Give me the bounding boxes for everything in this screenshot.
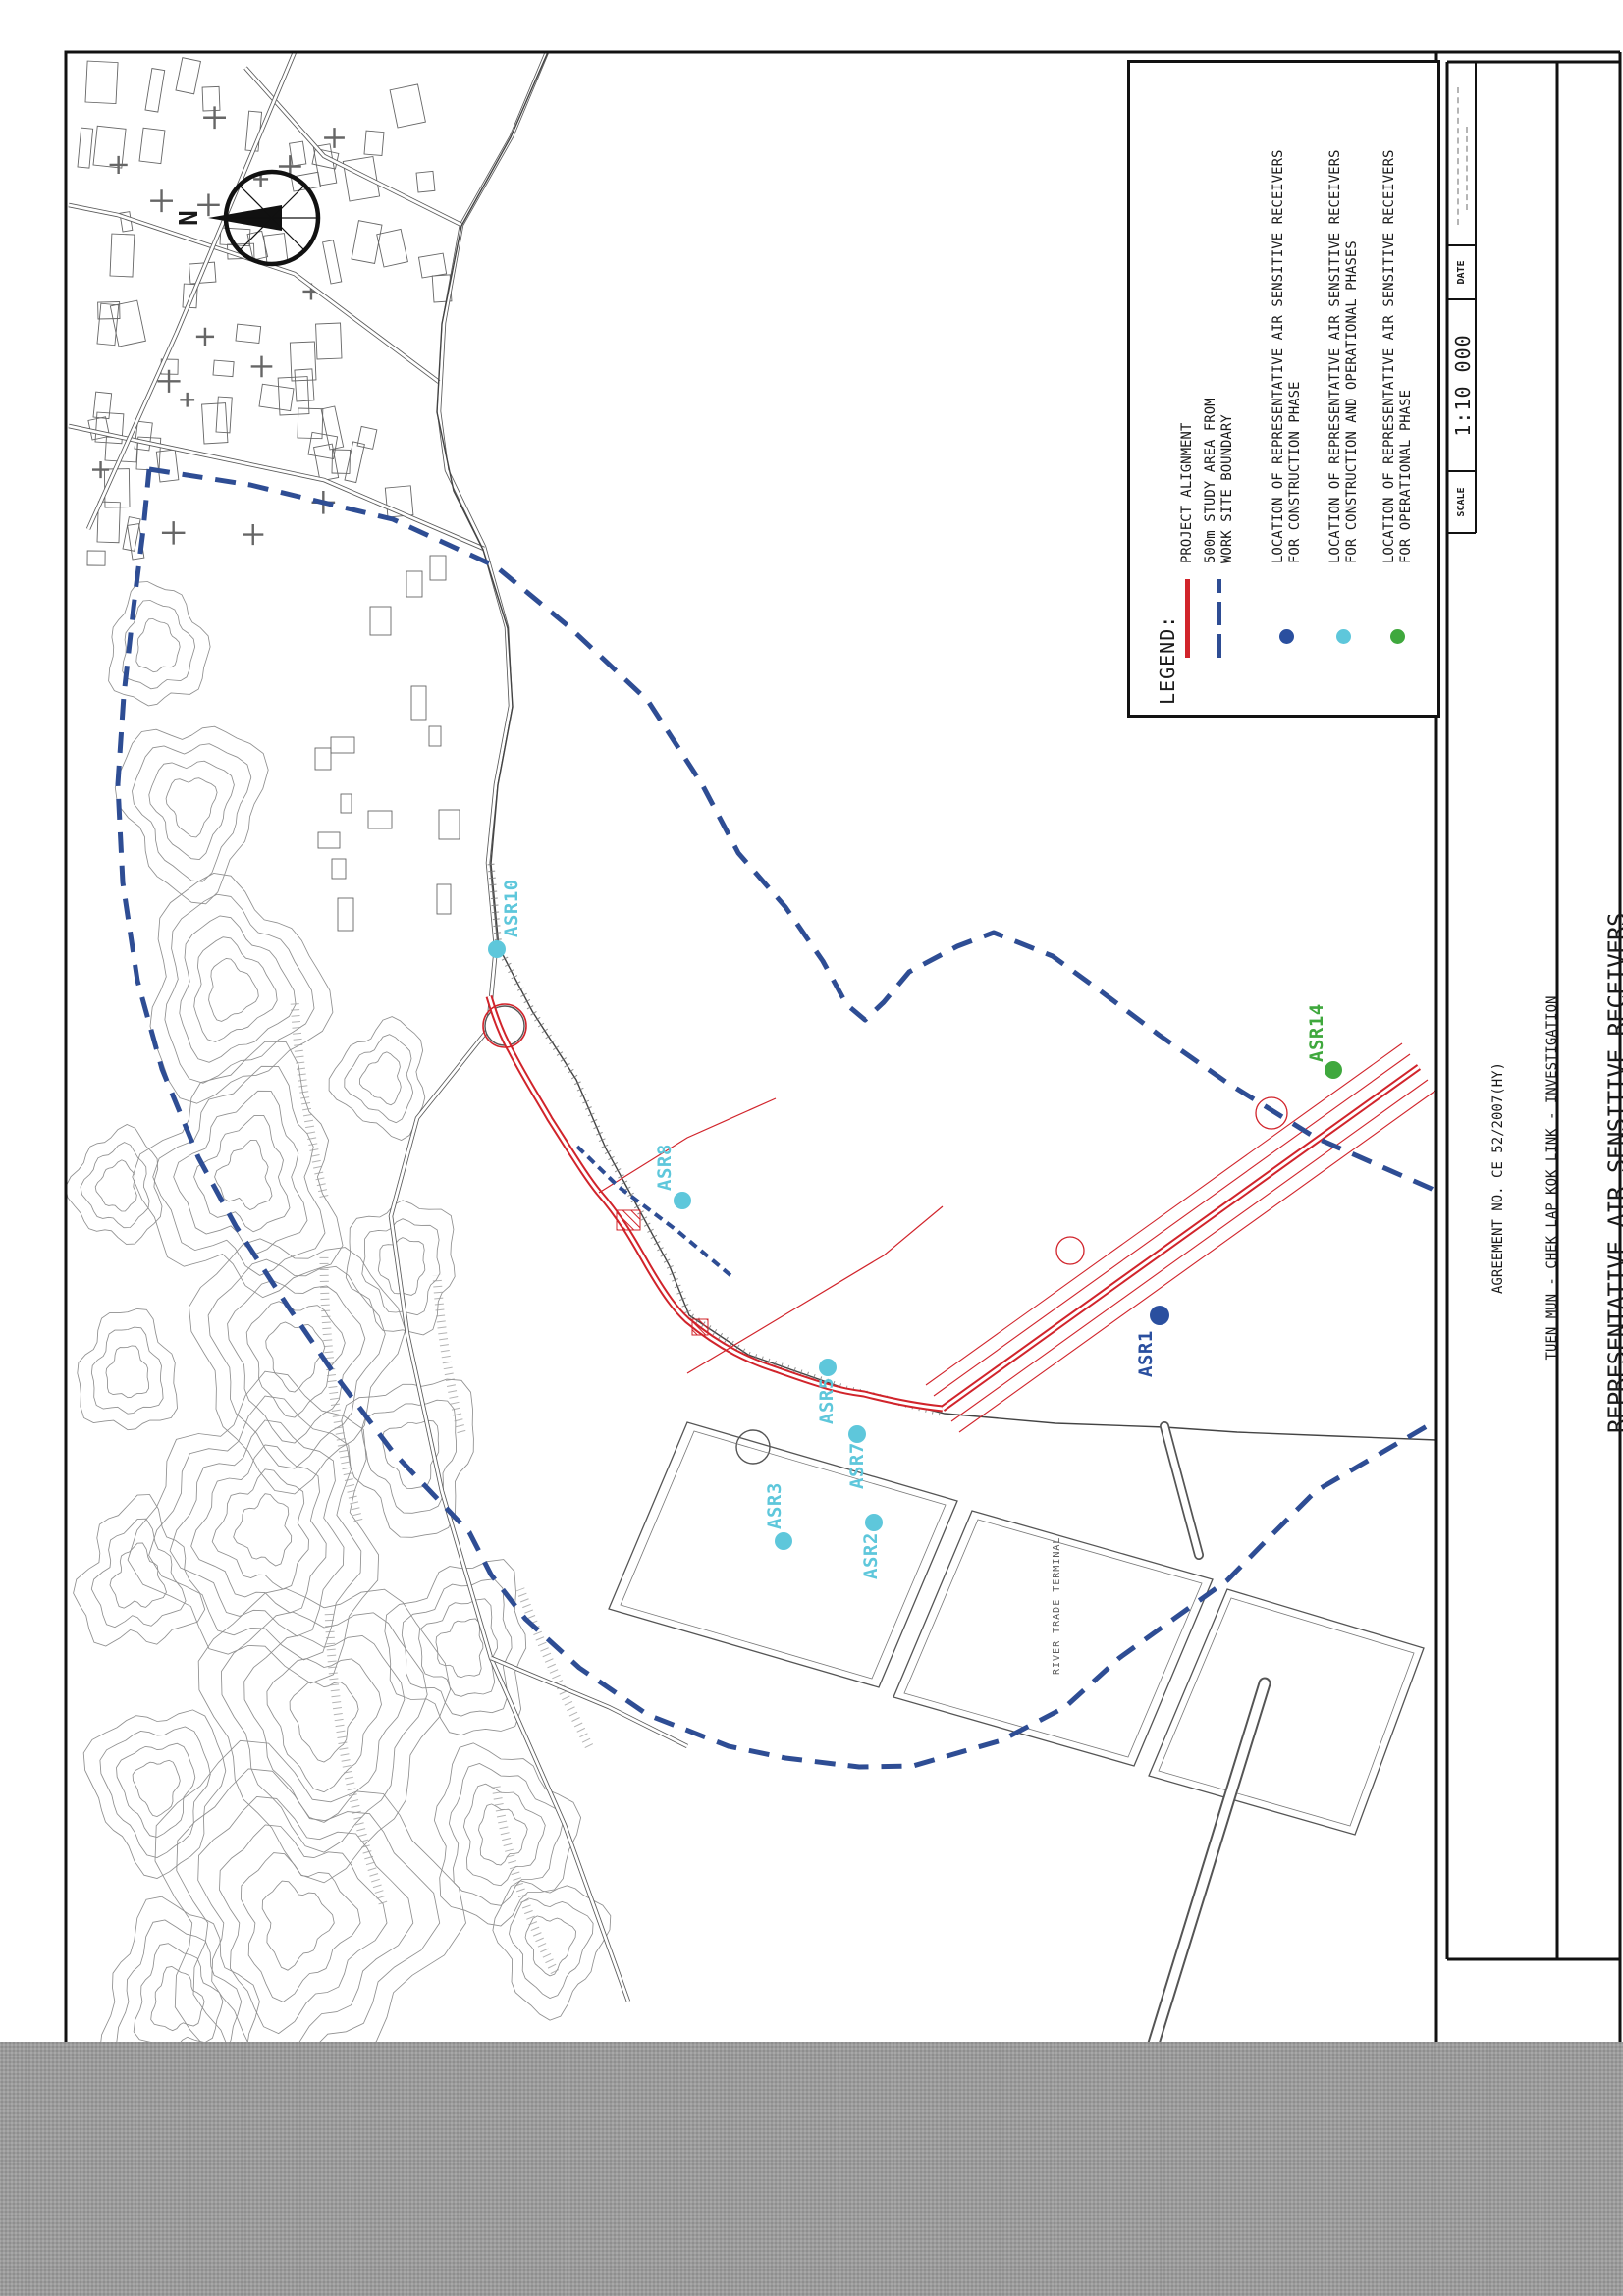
slip-road-loop bbox=[1056, 1237, 1084, 1264]
roundabout bbox=[736, 1430, 770, 1464]
asr-label-ASR3: ASR3 bbox=[764, 1482, 785, 1529]
date-label: DATE bbox=[1456, 245, 1467, 299]
ventilation-building bbox=[617, 1210, 640, 1230]
date-placeholder-marks bbox=[1466, 127, 1468, 210]
drawing-title: REPRESENTATIVE AIR SENSITIVE RECEIVERS bbox=[1603, 923, 1623, 1433]
legend-item-label: 500m STUDY AREA FROM WORK SITE BOUNDARY bbox=[1203, 398, 1236, 563]
port-basin bbox=[1149, 1589, 1424, 1835]
drawing-sheet: N LEGEND: PROJECT ALIGNMENT500m STUDY AR… bbox=[0, 0, 1623, 2296]
map-label: RIVER TRADE TERMINAL bbox=[1052, 1537, 1062, 1675]
title-block: AGREEMENT NO. CE 52/2007(HY) TUEN MUN - … bbox=[1453, 923, 1623, 1433]
scale-label: SCALE bbox=[1456, 471, 1467, 533]
project-alignment bbox=[489, 996, 943, 1409]
legend-item-label: PROJECT ALIGNMENT bbox=[1179, 423, 1196, 563]
screenshot-root: { "colors": { "alignment_red": "#d1242b"… bbox=[0, 0, 1623, 2296]
legend-title: LEGEND: bbox=[1156, 615, 1179, 705]
legend-symbol-receiver-dot bbox=[1279, 629, 1294, 644]
slope-hatch bbox=[295, 1000, 324, 1197]
legend-box: LEGEND: PROJECT ALIGNMENT500m STUDY AREA… bbox=[1127, 60, 1440, 718]
slope-hatch bbox=[437, 1275, 461, 1432]
asr-dot-ASR3 bbox=[775, 1532, 792, 1550]
legend-item-label: LOCATION OF REPRESENTATIVE AIR SENSITIVE… bbox=[1327, 150, 1361, 563]
date-placeholder-marks bbox=[1457, 87, 1459, 225]
project-name: TUEN MUN - CHEK LAP KOK LINK - INVESTIGA… bbox=[1544, 923, 1561, 1433]
asr-label-ASR2: ASR2 bbox=[860, 1532, 882, 1579]
slip-road-loop bbox=[1256, 1097, 1287, 1129]
legend-symbol-study-area-dashed-line bbox=[1217, 579, 1221, 658]
agreement-number: AGREEMENT NO. CE 52/2007(HY) bbox=[1490, 923, 1507, 1433]
receiver-dots bbox=[488, 940, 1342, 1550]
works-area-outline bbox=[951, 1080, 1428, 1421]
slope-hatch bbox=[329, 1609, 383, 1903]
asr-label-ASR1: ASR1 bbox=[1135, 1330, 1157, 1377]
legend-item-label: LOCATION OF REPRESENTATIVE AIR SENSITIVE… bbox=[1271, 150, 1304, 563]
works-area-line bbox=[599, 1098, 776, 1193]
asr-label-ASR8: ASR8 bbox=[654, 1144, 676, 1191]
asr-dot-ASR14 bbox=[1325, 1061, 1342, 1079]
asr-dot-ASR8 bbox=[674, 1192, 691, 1209]
asr-label-ASR14: ASR14 bbox=[1306, 1003, 1327, 1062]
legend-item-label: LOCATION OF REPRESENTATIVE AIR SENSITIVE… bbox=[1381, 150, 1415, 563]
asr-dot-ASR1 bbox=[1150, 1306, 1169, 1325]
legend-symbol-project-alignment-line bbox=[1185, 579, 1190, 658]
asr-dot-ASR5 bbox=[819, 1359, 837, 1376]
asr-label-ASR10: ASR10 bbox=[501, 879, 522, 937]
urban-blocks bbox=[78, 58, 460, 931]
asr-dot-ASR7 bbox=[848, 1425, 866, 1443]
port-basin bbox=[609, 1422, 957, 1687]
contour-lines bbox=[66, 582, 611, 2129]
asr-dot-ASR2 bbox=[865, 1514, 883, 1531]
works-area-outline bbox=[934, 1054, 1410, 1396]
slope-hatch bbox=[496, 1786, 555, 1972]
scale-value: 1:10 000 bbox=[1451, 299, 1475, 471]
works-area-outline bbox=[959, 1091, 1435, 1432]
legend-symbol-receiver-dot bbox=[1336, 629, 1351, 644]
scan-artifact-band bbox=[0, 2042, 1623, 2296]
asr-label-ASR7: ASR7 bbox=[846, 1442, 868, 1489]
works-building bbox=[692, 1319, 708, 1335]
works-area-outline bbox=[926, 1043, 1402, 1385]
legend-symbol-receiver-dot bbox=[1390, 629, 1405, 644]
asr-dot-ASR10 bbox=[488, 940, 506, 958]
north-arrow-label: N bbox=[175, 200, 204, 236]
asr-label-ASR5: ASR5 bbox=[816, 1377, 838, 1424]
